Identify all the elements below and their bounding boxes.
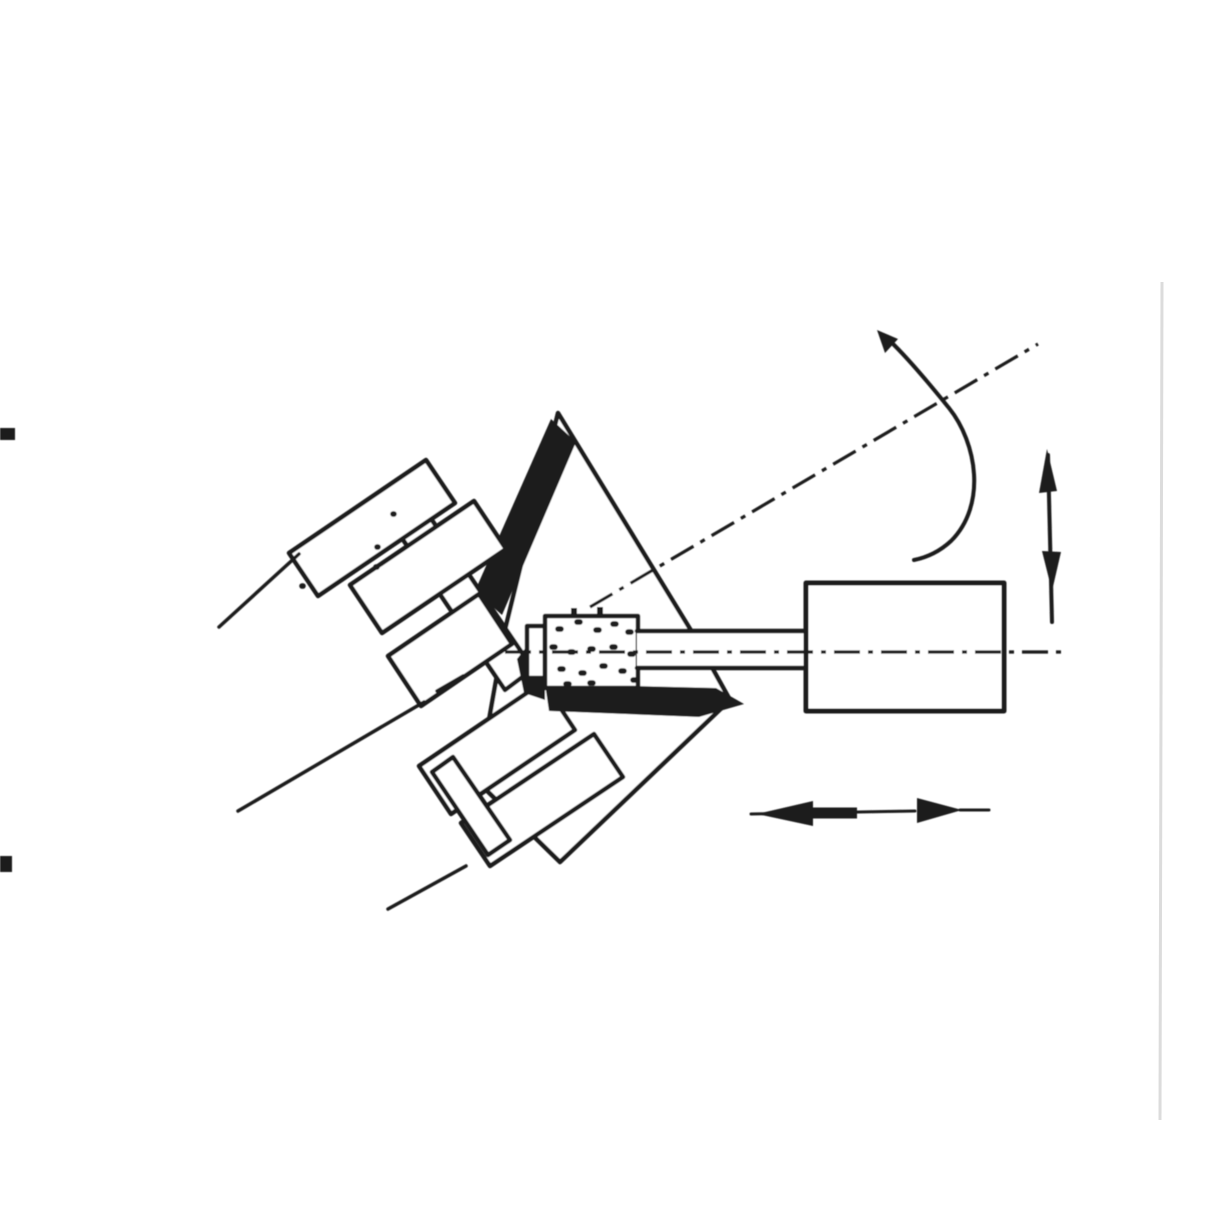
page-registration-dashes <box>0 428 15 872</box>
traverse-arrowhead-left <box>757 801 813 826</box>
quill-fill <box>637 632 807 668</box>
infeed-arrow <box>1039 449 1061 622</box>
registration-dash-bottom <box>0 856 12 872</box>
spindle-edge-line-middle <box>238 702 424 811</box>
rotation-arrow-arc <box>890 341 974 560</box>
infeed-arrowhead-down <box>1042 551 1061 591</box>
page-edge-rule <box>1160 282 1162 1120</box>
grinding-wheel <box>527 607 638 688</box>
rotation-arrow <box>877 330 974 560</box>
spindle-edge-line-lower <box>388 866 466 909</box>
traverse-arrow <box>751 798 989 826</box>
grinding-diagram-canvas <box>0 0 1214 1214</box>
wheel-quill <box>637 631 808 668</box>
wheelhead-cylinder <box>806 583 1004 711</box>
scanned-figure-page <box>0 0 1214 1214</box>
figure-ink-layer <box>0 330 1062 909</box>
infeed-arrowhead-up <box>1039 449 1057 493</box>
traverse-arrowhead-right <box>917 798 962 823</box>
spindle-edge-line-upper <box>219 554 299 627</box>
workpiece-axis-centerline <box>590 344 1038 607</box>
rotation-arrowhead <box>877 330 898 353</box>
registration-dash-top <box>0 428 15 440</box>
